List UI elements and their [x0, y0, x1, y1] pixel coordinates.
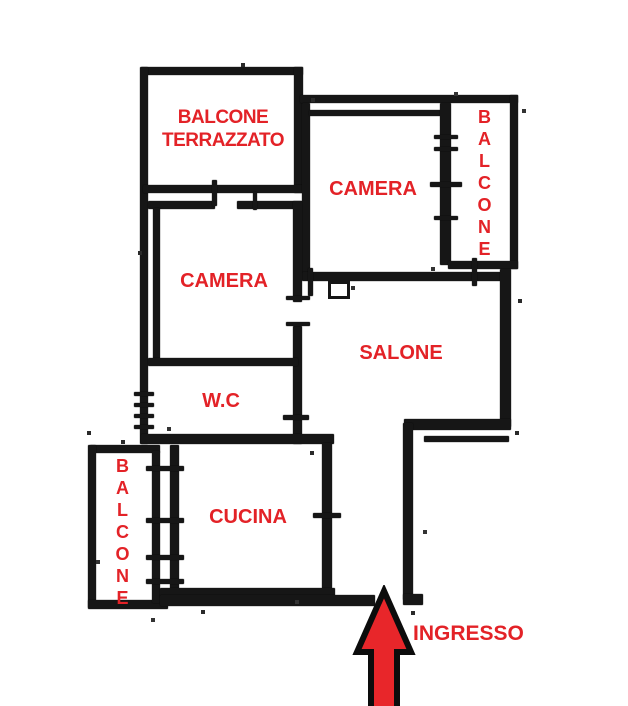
door-tick	[308, 268, 313, 296]
wall	[404, 419, 511, 430]
wall	[140, 67, 148, 444]
room-label-balcone-left: BALCONE	[114, 455, 131, 609]
wall	[309, 110, 441, 116]
wall	[300, 95, 518, 103]
wall	[148, 358, 298, 366]
window-tick	[434, 216, 458, 220]
room-label-cucina: CUCINA	[176, 506, 320, 528]
floor-plan: BALCONE TERRAZZATO CAMERA BALCONE CAMERA…	[0, 0, 628, 706]
window-tick	[434, 135, 458, 139]
room-label-ingresso: INGRESSO	[413, 623, 523, 645]
door-tick	[286, 322, 310, 326]
entrance-arrow-icon	[350, 585, 420, 706]
window-tick	[146, 555, 184, 560]
door-tick	[283, 415, 309, 420]
scan-noise	[0, 0, 2, 2]
window-tick	[134, 414, 154, 418]
wall	[302, 272, 508, 281]
window-tick	[134, 425, 154, 429]
wall	[141, 67, 303, 75]
wall	[500, 269, 511, 427]
window-tick	[146, 466, 184, 471]
window-tick	[434, 147, 458, 151]
window-tick	[146, 579, 184, 584]
room-label-wc: W.C	[150, 390, 292, 412]
wall	[424, 436, 509, 442]
wall	[141, 434, 334, 444]
door-tick	[253, 192, 257, 210]
wall	[293, 326, 302, 444]
door-tick	[472, 258, 477, 286]
room-label-salone: SALONE	[330, 342, 472, 364]
room-label-camera-mid: CAMERA	[153, 270, 295, 292]
wall	[160, 595, 375, 606]
room-label-balcone-terrazzato: BALCONE TERRAZZATO	[148, 106, 298, 152]
wall	[403, 423, 413, 600]
wall	[510, 95, 518, 269]
room-label-camera-top: CAMERA	[303, 178, 443, 200]
wall	[448, 261, 518, 269]
door-tick	[286, 296, 310, 300]
wall	[88, 445, 96, 608]
wall	[322, 443, 332, 595]
pillar	[328, 281, 350, 299]
room-label-balcone-right: BALCONE	[476, 106, 493, 260]
wall	[143, 185, 304, 193]
door-tick	[212, 180, 217, 206]
wall	[90, 445, 160, 453]
